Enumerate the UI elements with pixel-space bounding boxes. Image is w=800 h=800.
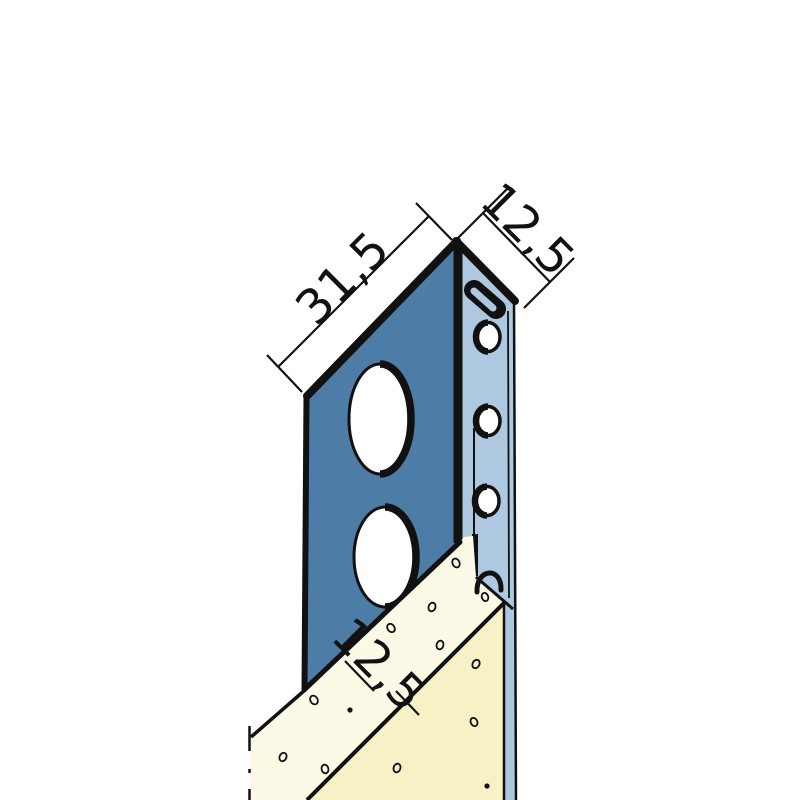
flange-left-edge xyxy=(305,395,307,690)
profile-diagram: 31,5 12,5 12,5 xyxy=(0,0,800,800)
technical-drawing-canvas: 31,5 12,5 12,5 xyxy=(0,0,800,800)
flange-hole-top xyxy=(349,364,411,474)
strip-crease-right xyxy=(508,311,509,598)
